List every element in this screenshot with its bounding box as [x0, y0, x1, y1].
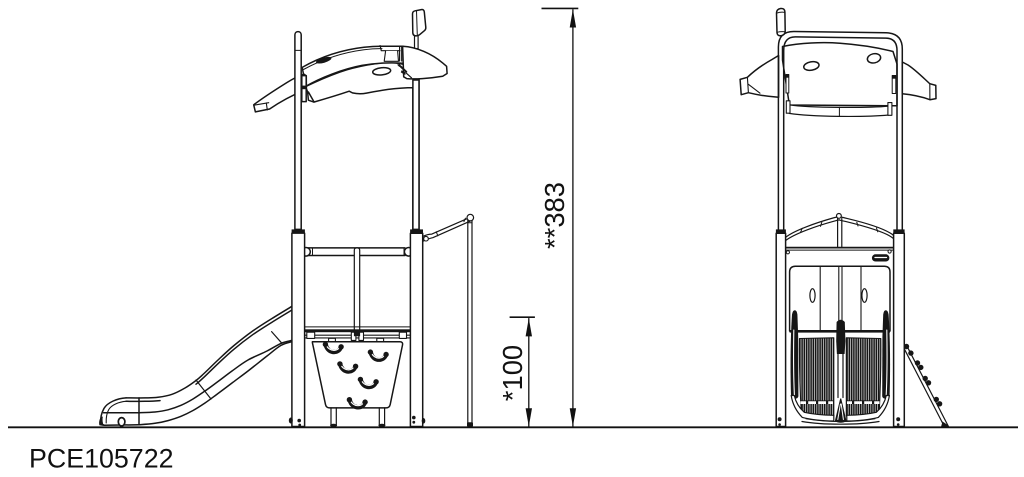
svg-text:**383: **383: [539, 182, 570, 249]
svg-text:*100: *100: [497, 345, 528, 401]
svg-text:PCE105722: PCE105722: [29, 444, 174, 474]
